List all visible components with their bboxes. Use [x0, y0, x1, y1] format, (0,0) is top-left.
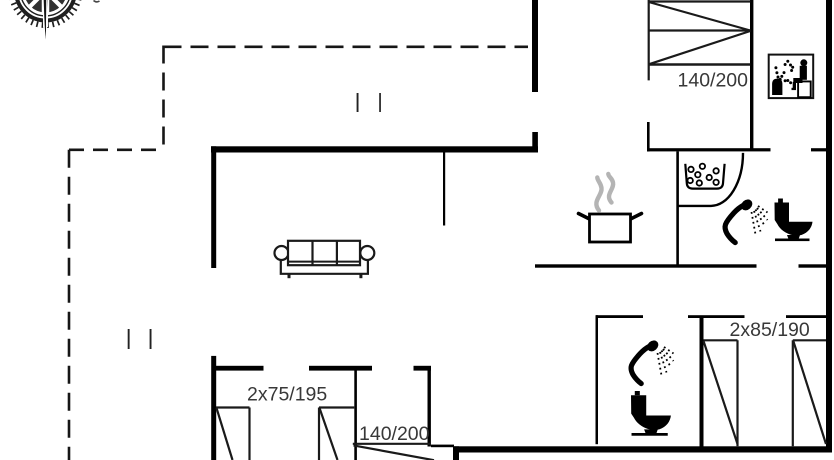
svg-text:140/200: 140/200	[678, 70, 749, 92]
svg-text:2x85/190: 2x85/190	[730, 319, 810, 341]
svg-text:2x75/195: 2x75/195	[247, 384, 327, 406]
svg-text:140/200: 140/200	[359, 423, 430, 445]
